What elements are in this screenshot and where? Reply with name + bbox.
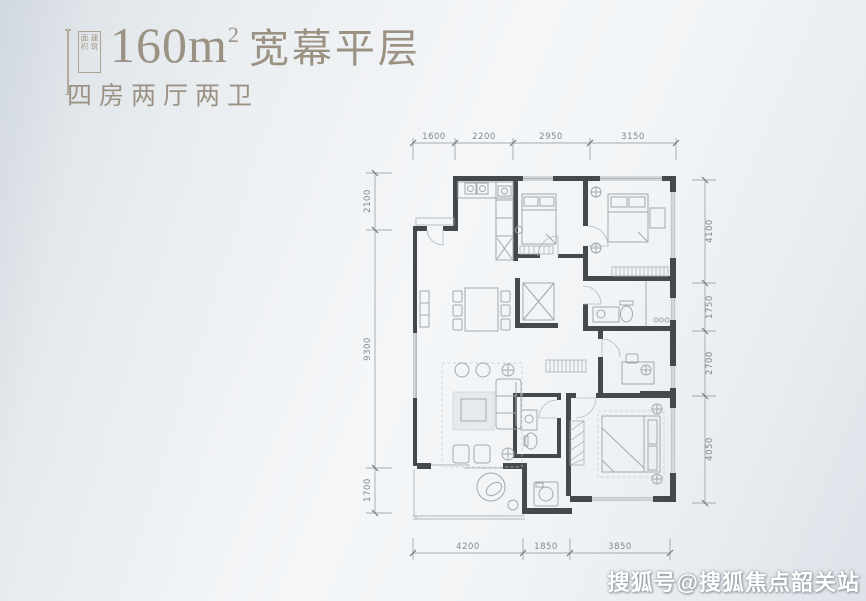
dim-label: 4200 bbox=[456, 542, 480, 552]
bathroom-1 bbox=[593, 281, 669, 326]
dim-label: 1700 bbox=[363, 478, 373, 502]
building-area-badge: 建筑 面积 bbox=[78, 31, 101, 73]
storage-closet bbox=[523, 283, 554, 320]
title-text: 宽幕平层 bbox=[249, 26, 421, 71]
dim-label: 4100 bbox=[705, 219, 715, 243]
dim-label: 4050 bbox=[705, 437, 715, 461]
dining-area bbox=[453, 288, 510, 331]
dim-label: 2700 bbox=[705, 351, 715, 375]
badge-text-right: 建筑 bbox=[90, 34, 99, 70]
page-title: 160m2宽幕平层 bbox=[110, 16, 421, 74]
dimension-bottom: 4200 1850 3850 bbox=[410, 538, 673, 560]
dim-label: 2100 bbox=[363, 189, 373, 213]
living-area bbox=[420, 291, 522, 467]
bedroom-2 bbox=[516, 194, 557, 254]
study-room bbox=[622, 354, 654, 384]
floorplan: 1600 2200 2950 3150 2100 9300 1700 4100 … bbox=[350, 108, 730, 578]
balcony bbox=[477, 473, 518, 510]
bathroom-2 bbox=[521, 410, 537, 449]
dim-label: 3850 bbox=[608, 542, 632, 552]
kitchen bbox=[458, 182, 513, 260]
dim-label: 2950 bbox=[539, 132, 563, 142]
dim-label: 2200 bbox=[472, 132, 496, 142]
dim-label: 1850 bbox=[534, 542, 558, 552]
subtitle: 四房两厅两卫 bbox=[67, 76, 259, 112]
dimension-top: 1600 2200 2950 3150 bbox=[410, 132, 679, 160]
area-value: 160m bbox=[110, 17, 228, 73]
page: 建筑 面积 160m2宽幕平层 四房两厅两卫 1600 2200 2950 31… bbox=[0, 0, 866, 601]
dim-label: 3150 bbox=[621, 132, 645, 142]
laundry bbox=[534, 482, 558, 506]
dim-label: 9300 bbox=[363, 337, 373, 361]
hallway-wardrobe bbox=[546, 360, 586, 372]
watermark: 搜狐号@搜狐焦点韶关站 bbox=[608, 565, 860, 597]
area-superscript: 2 bbox=[228, 22, 239, 47]
walls bbox=[413, 176, 676, 514]
badge-text-left: 面积 bbox=[80, 34, 89, 70]
dim-label: 1600 bbox=[422, 132, 446, 142]
dimension-right: 4100 1750 2700 4050 bbox=[692, 177, 716, 506]
bedroom-3 bbox=[591, 187, 668, 276]
dimension-left: 2100 9300 1700 bbox=[363, 170, 392, 516]
dim-label: 1750 bbox=[705, 295, 715, 319]
